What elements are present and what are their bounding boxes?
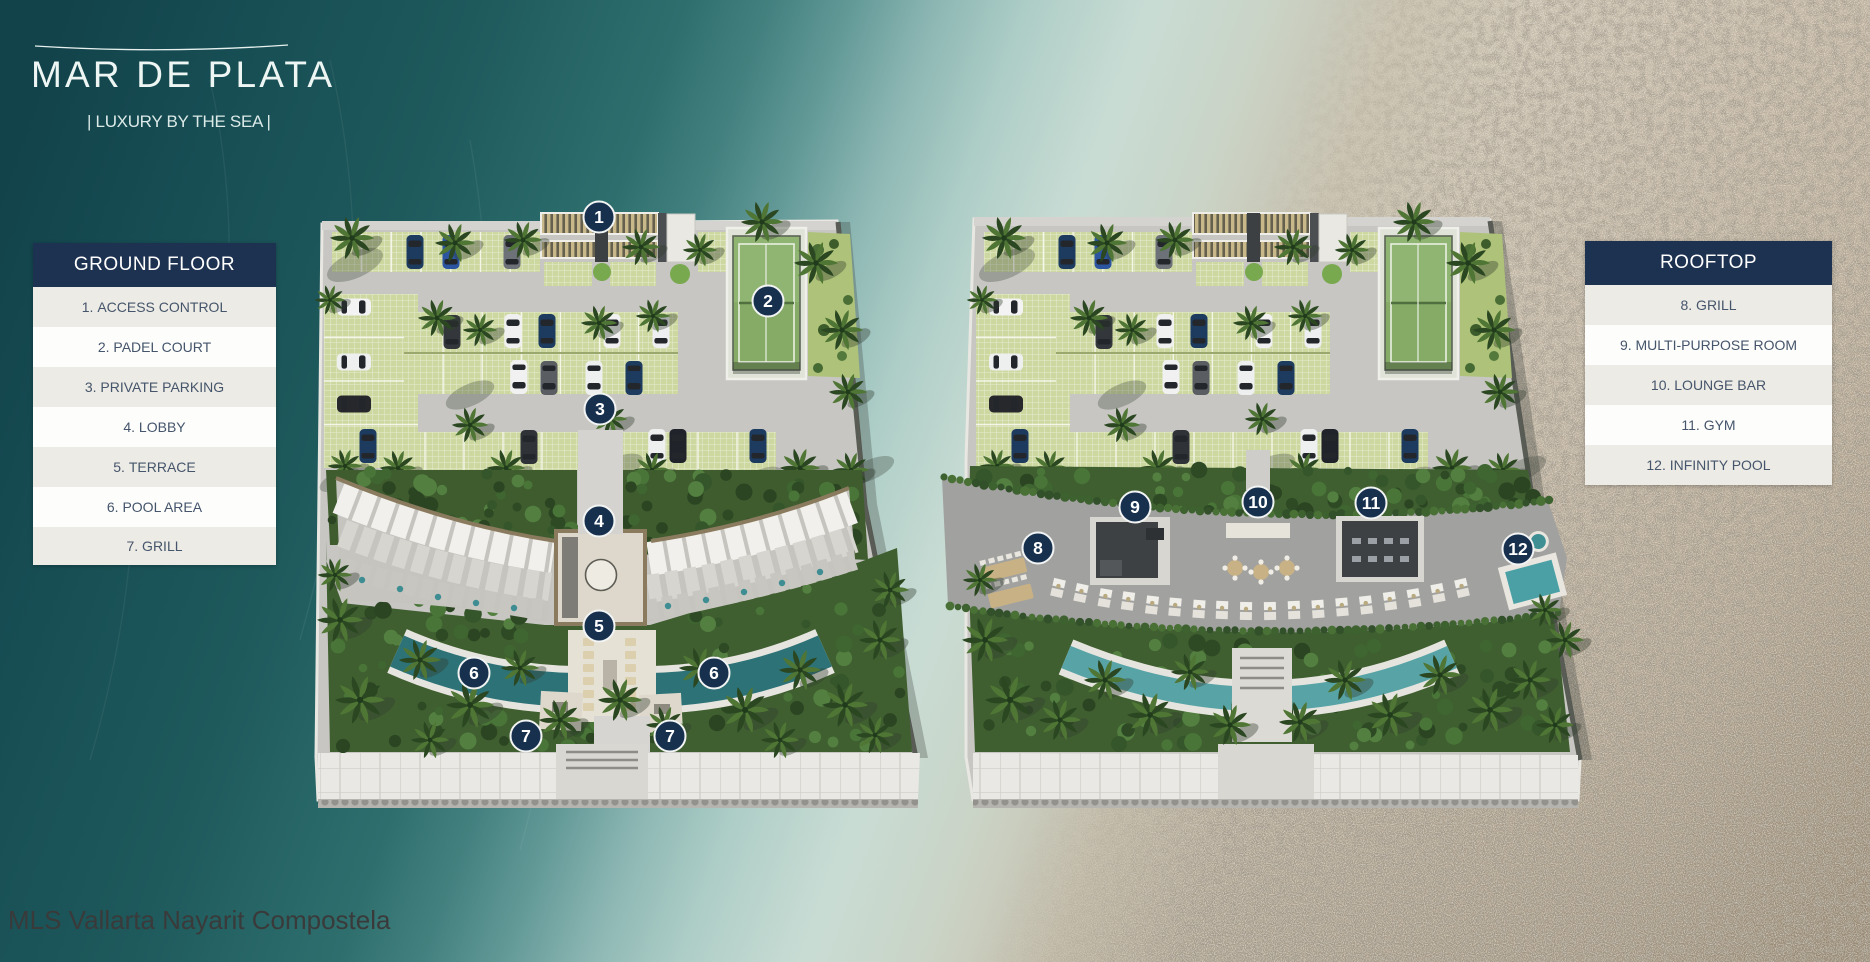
svg-text:3: 3: [595, 399, 605, 419]
svg-text:12: 12: [1508, 539, 1528, 559]
svg-text:7: 7: [665, 726, 675, 746]
svg-text:5: 5: [594, 616, 604, 636]
svg-text:6: 6: [709, 663, 719, 683]
svg-text:10: 10: [1248, 492, 1268, 512]
svg-text:2: 2: [763, 291, 773, 311]
svg-text:6: 6: [469, 663, 479, 683]
svg-text:11: 11: [1362, 493, 1381, 513]
svg-text:7: 7: [521, 726, 531, 746]
svg-text:9: 9: [1130, 497, 1140, 517]
svg-text:1: 1: [594, 207, 604, 227]
svg-text:4: 4: [594, 511, 604, 531]
svg-text:8: 8: [1033, 538, 1043, 558]
